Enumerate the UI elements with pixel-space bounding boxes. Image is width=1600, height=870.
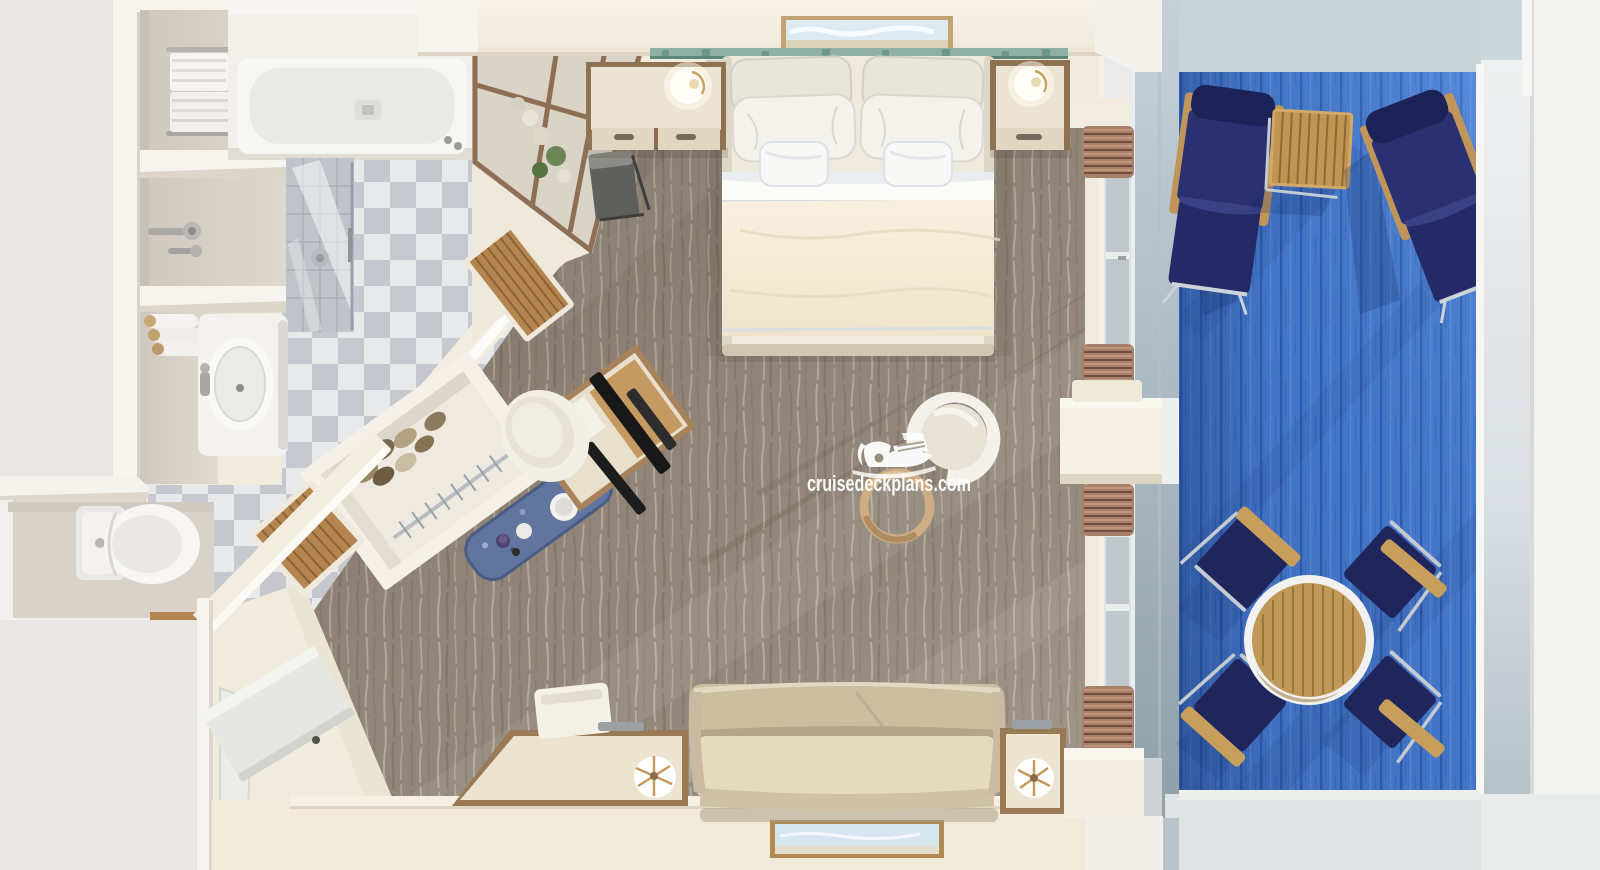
svg-text:cruisedeckplans.com: cruisedeckplans.com: [807, 471, 971, 496]
